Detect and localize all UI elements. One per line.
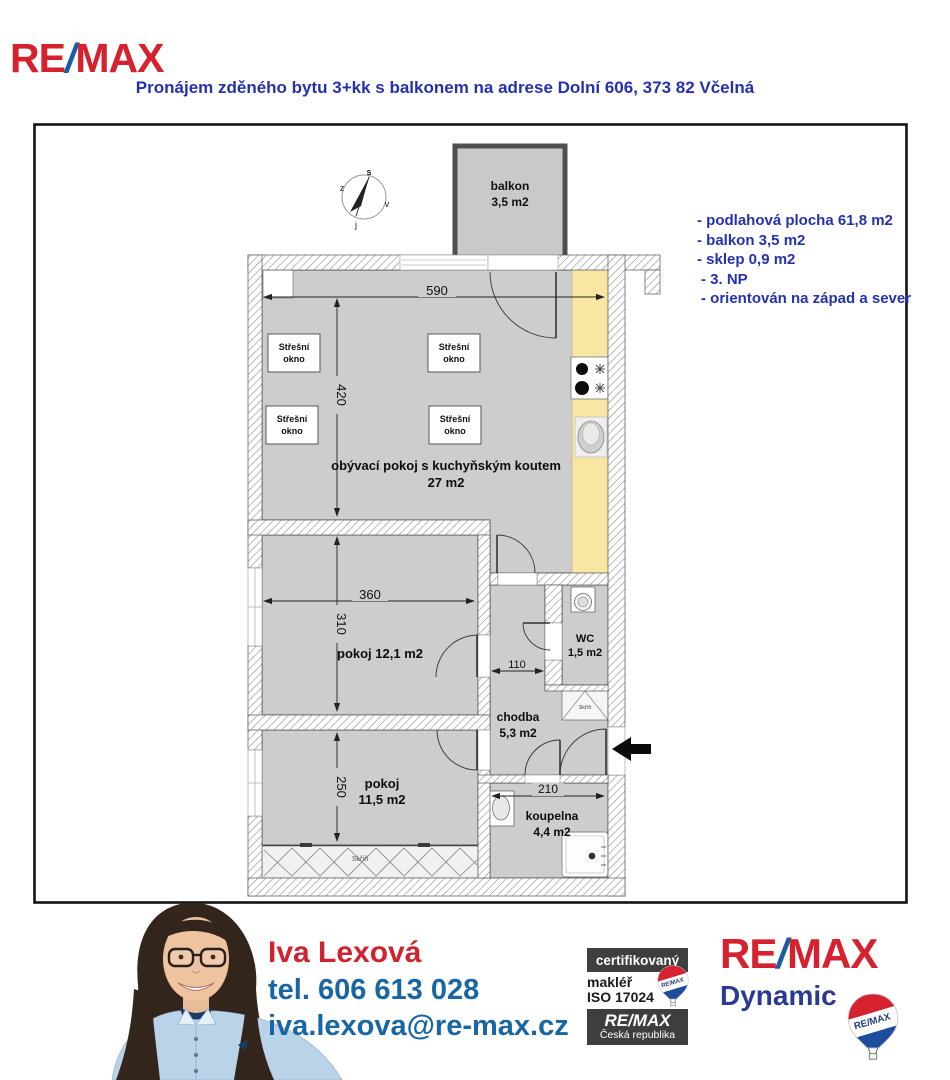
badge-remax-cz: RE/MAX Česká republika xyxy=(587,1009,688,1045)
svg-text:okno: okno xyxy=(444,426,466,436)
skylight-box: Střešníokno xyxy=(429,406,481,444)
wc-label: WC xyxy=(576,633,594,645)
remax-balloon-icon: RE/MAX xyxy=(656,965,690,1007)
shaft-box xyxy=(263,270,293,298)
office-logo-max: MAX xyxy=(787,930,877,977)
dim-koupelna-width: 210 xyxy=(538,782,558,796)
dim-room1-height: 310 xyxy=(334,613,349,635)
svg-text:okno: okno xyxy=(281,426,303,436)
svg-text:Střešní: Střešní xyxy=(440,414,471,424)
door-gap-wc xyxy=(545,623,562,660)
wall-right-1 xyxy=(608,255,625,727)
window-top xyxy=(400,255,488,270)
svg-text:Střešní: Střešní xyxy=(279,342,310,352)
dim-living-width: 590 xyxy=(426,283,448,298)
property-info-list: - podlahová plocha 61,8 m2 - balkon 3,5 … xyxy=(697,211,911,309)
agent-email: iva.lexova@re-max.cz xyxy=(268,1010,569,1043)
svg-text:okno: okno xyxy=(283,354,305,364)
svg-text:Střešní: Střešní xyxy=(439,342,470,352)
wall-corridor-wc xyxy=(537,573,608,585)
info-line: - podlahová plocha 61,8 m2 xyxy=(697,211,911,231)
compass-icon: s z v j xyxy=(340,167,390,230)
wall-corridor-stub xyxy=(490,573,498,585)
koupelna-label: koupelna xyxy=(526,809,579,823)
room2-label: pokoj xyxy=(365,776,400,791)
wall-wc-bottom xyxy=(545,685,608,691)
kitchen-sink-icon xyxy=(575,417,607,457)
dim-chodba-width: 110 xyxy=(508,659,526,671)
door-gap-room2 xyxy=(478,730,490,770)
balkon-area: 3,5 m2 xyxy=(491,195,529,209)
badge-iso: makléř ISO 17024 RE/MAX xyxy=(587,974,688,1007)
skylight-box: Střešníokno xyxy=(268,334,320,372)
compass-north-label: s xyxy=(366,167,371,177)
remax-logo-max: MAX xyxy=(75,35,163,81)
remax-logo-re: RE xyxy=(10,35,65,81)
toilet-icon xyxy=(571,587,595,612)
dim-living-height: 420 xyxy=(334,384,349,406)
agent-name: Iva Lexová xyxy=(268,936,421,970)
wall-left-2 xyxy=(248,646,262,750)
compass-west-label: z xyxy=(340,183,345,193)
skylight-box: Střešníokno xyxy=(266,406,318,444)
hall-wardrobe: Skříň xyxy=(562,690,608,720)
dim-room2-height: 250 xyxy=(334,776,349,798)
wall-living-room1 xyxy=(248,520,490,535)
room1-label: pokoj 12,1 m2 xyxy=(337,646,423,661)
remax-logo: RE/MAX xyxy=(10,38,163,79)
balcony-door-gap xyxy=(488,255,558,270)
dim-room1-width: 360 xyxy=(359,587,381,602)
info-line: - sklep 0,9 m2 xyxy=(697,250,911,270)
compass-east-label: v xyxy=(385,199,390,209)
wall-room1-hall-b xyxy=(478,677,490,715)
info-line: - 3. NP xyxy=(697,270,911,290)
balkon-label: balkon xyxy=(491,179,530,193)
wall-wc-left-b xyxy=(545,660,562,685)
living-area: 27 m2 xyxy=(428,475,465,490)
compass-south-label: j xyxy=(354,220,357,230)
room1-floor xyxy=(262,535,478,715)
badge-remax-label: RE/MAX xyxy=(589,1012,686,1030)
office-logo-slash: / xyxy=(776,930,787,977)
certification-badges: certifikovaný makléř ISO 17024 RE/MAX RE… xyxy=(587,948,688,1045)
wall-wc-left-a xyxy=(545,585,562,623)
chodba-area: 5,3 m2 xyxy=(499,726,537,740)
room-balkon: balkon 3,5 m2 xyxy=(455,146,565,257)
svg-text:Střešní: Střešní xyxy=(277,414,308,424)
listing-title: Pronájem zděného bytu 3+kk s balkonem na… xyxy=(30,78,860,98)
office-logo-re: RE xyxy=(720,930,776,977)
chodba-label: chodba xyxy=(497,710,540,724)
skylight-box: Střešníokno xyxy=(428,334,480,372)
svg-text:okno: okno xyxy=(443,354,465,364)
agent-phone: tel. 606 613 028 xyxy=(268,974,479,1007)
living-label: obývací pokoj s kuchyňským koutem xyxy=(331,458,561,473)
door-gap-living xyxy=(498,573,537,585)
info-line: - orientován na západ a sever xyxy=(697,289,911,309)
remax-logo-slash: / xyxy=(65,35,75,81)
flyer: RE/MAX Pronájem zděného bytu 3+kk s balk… xyxy=(0,0,950,1080)
badge-country-label: Česká republika xyxy=(589,1030,686,1041)
wall-top-stub xyxy=(645,270,660,294)
koupelna-area: 4,4 m2 xyxy=(533,825,571,839)
info-line: - balkon 3,5 m2 xyxy=(697,231,911,251)
wall-bottom xyxy=(248,878,625,896)
room2-area: 11,5 m2 xyxy=(359,792,406,807)
door-gap-room1 xyxy=(478,635,490,677)
wall-room1-room2 xyxy=(248,715,490,730)
bedroom-wardrobe-label: Skříň xyxy=(352,856,368,863)
wall-room1-hall-a xyxy=(478,535,490,635)
hall-wardrobe-label: Skříň xyxy=(579,705,592,711)
wall-room2-bath xyxy=(478,770,490,878)
wc-area: 1,5 m2 xyxy=(568,647,602,659)
stove-icon xyxy=(571,357,608,399)
remax-balloon-logo: RE/MAX xyxy=(845,993,901,1061)
